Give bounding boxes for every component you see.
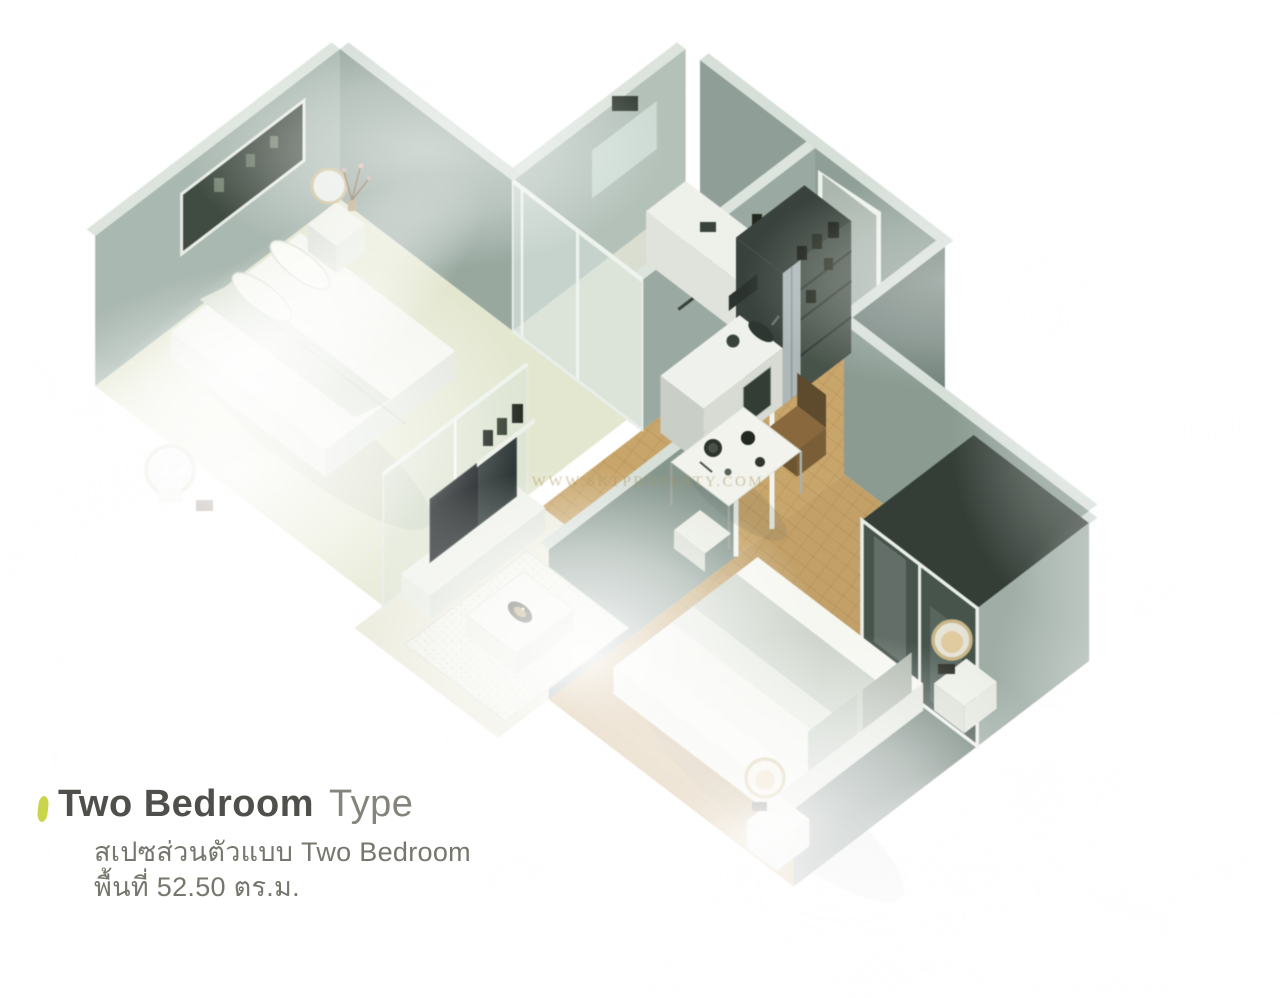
plan-subtitle-thai: สเปซส่วนตัวแบบ Two Bedroom	[38, 835, 471, 871]
watermark: WWW.SKTPROPERTY.COM	[532, 474, 764, 490]
kitchen-kettle	[727, 335, 740, 348]
vanity-sink-item	[700, 222, 716, 232]
plan-title: Two Bedroom Type	[38, 784, 471, 826]
flare	[950, 230, 1250, 630]
flare	[185, 30, 665, 270]
plan-title-secondary: Type	[329, 784, 413, 826]
plan-title-primary: Two Bedroom	[58, 784, 314, 826]
page: WWW.SKTPROPERTY.COM Two Bedroom Type สเป…	[0, 0, 1280, 998]
dining-bowl-small	[755, 457, 765, 467]
caption-block: Two Bedroom Type สเปซส่วนตัวแบบ Two Bedr…	[38, 784, 471, 906]
nightstand2a-lamp-glow	[941, 631, 963, 653]
dining-pot-rim	[708, 443, 718, 453]
plan-area-thai: พื้นที่ 52.50 ตร.ม.	[38, 870, 471, 906]
accent-leaf-icon	[37, 796, 50, 823]
dining-plate	[741, 431, 755, 445]
